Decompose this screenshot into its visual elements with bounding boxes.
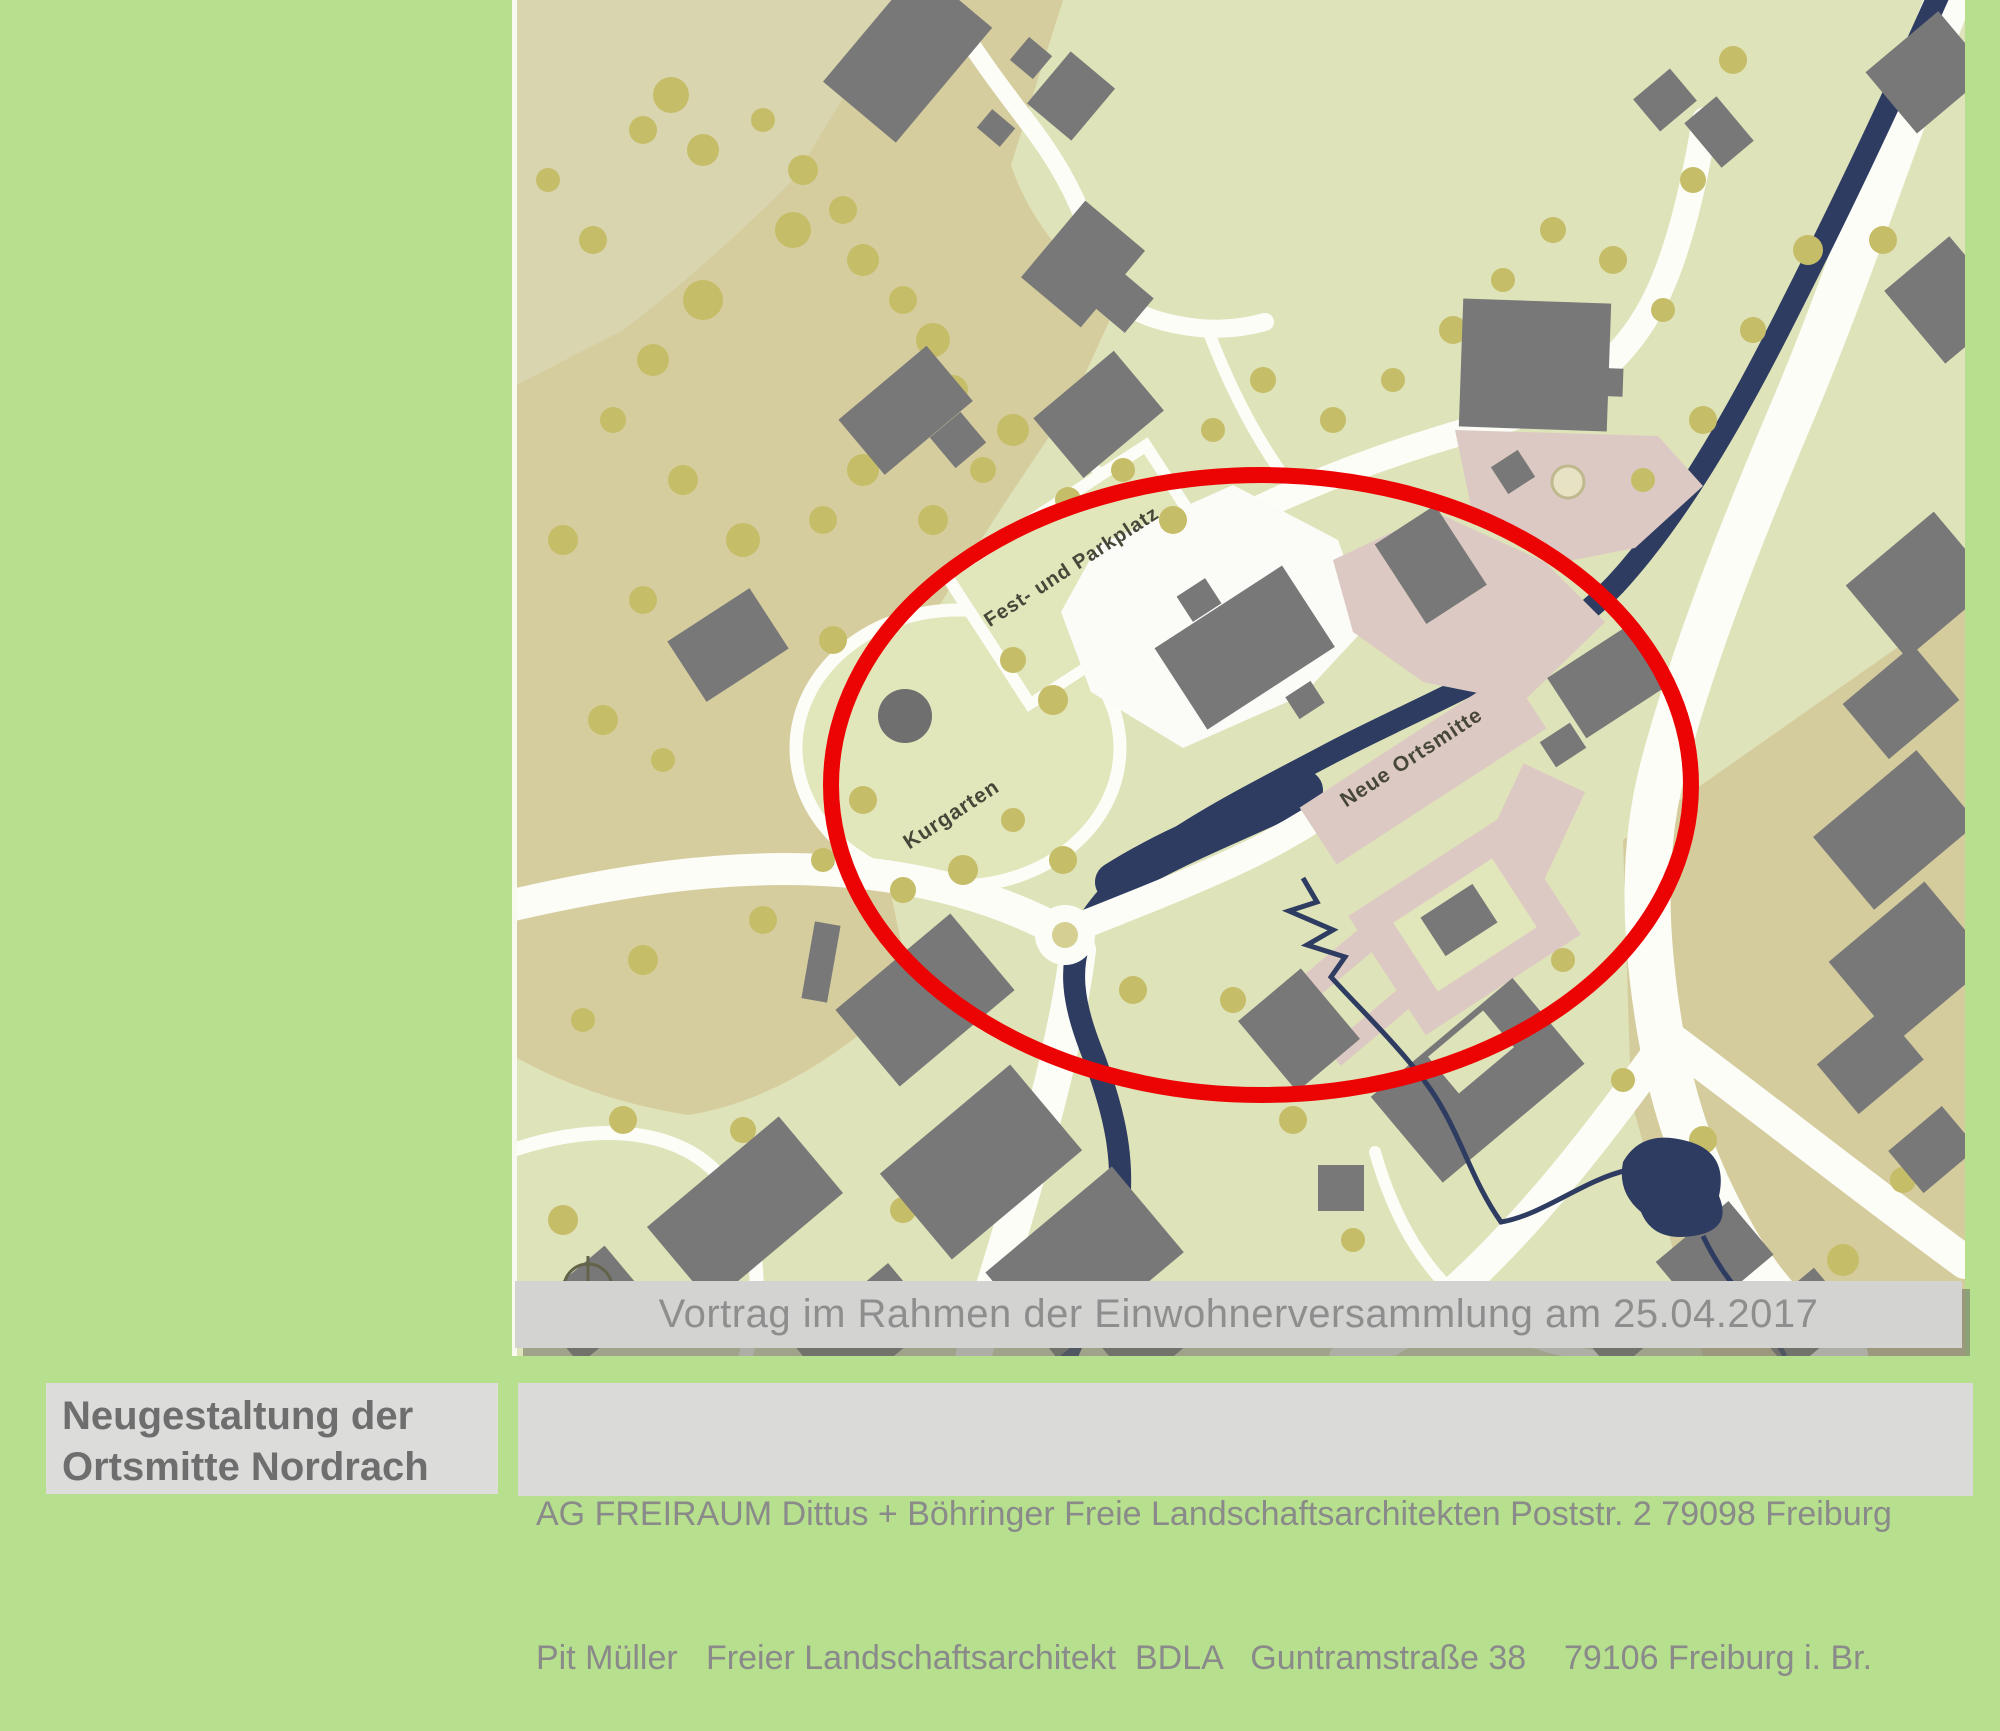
fountain [1552, 466, 1584, 498]
title-box: Neugestaltung der Ortsmitte Nordrach [46, 1383, 498, 1494]
caption-text: Vortrag im Rahmen der Einwohnerversammlu… [659, 1292, 1819, 1337]
caption-bar: Vortrag im Rahmen der Einwohnerversammlu… [515, 1281, 1962, 1348]
site-plan-svg: Fest- und Parkplatz Kurgarten Neue Ortsm… [517, 0, 1965, 1356]
credits-line-2: Pit Müller Freier Landschaftsarchitekt B… [536, 1634, 1973, 1682]
title-line-2: Ortsmitte Nordrach [62, 1442, 498, 1493]
credits-line-1: AG FREIRAUM Dittus + Böhringer Freie Lan… [536, 1490, 1973, 1538]
kurgarten-pavilion [878, 689, 932, 743]
credits-box: AG FREIRAUM Dittus + Böhringer Freie Lan… [518, 1383, 1973, 1496]
site-plan-map: Fest- und Parkplatz Kurgarten Neue Ortsm… [512, 0, 1965, 1356]
roundabout-center [1052, 922, 1078, 948]
title-line-1: Neugestaltung der [62, 1391, 498, 1442]
